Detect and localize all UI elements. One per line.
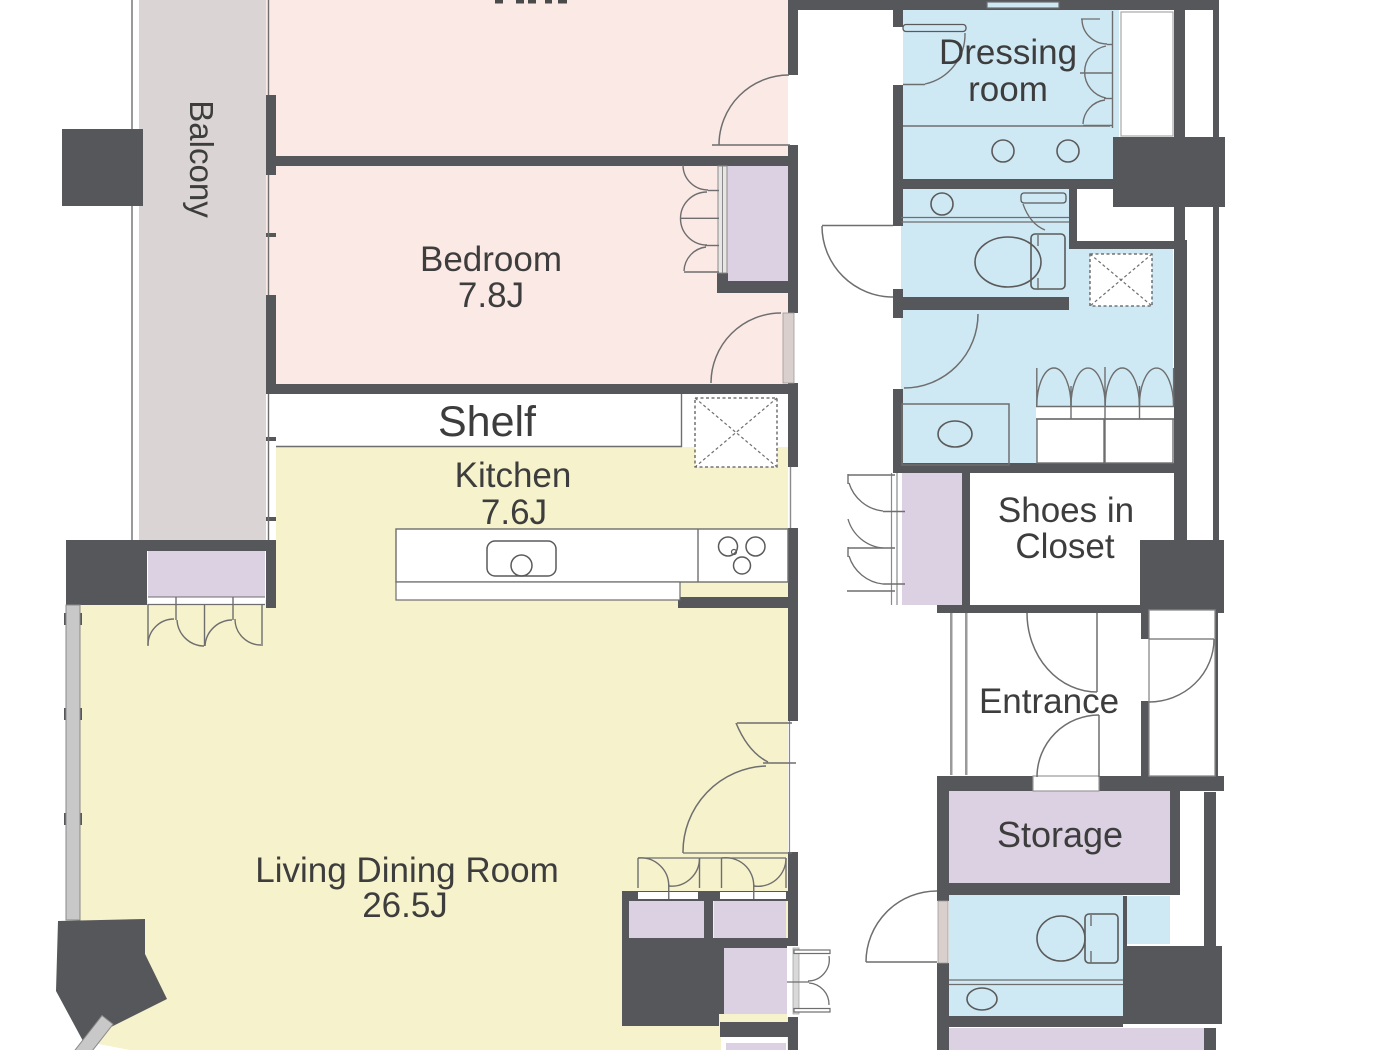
svg-text:Shelf: Shelf [438, 398, 537, 446]
svg-text:7.6J: 7.6J [481, 493, 547, 532]
svg-text:Living Dining Room: Living Dining Room [255, 851, 558, 890]
svg-text:Storage: Storage [997, 814, 1123, 855]
svg-text:Shoes in: Shoes in [998, 491, 1134, 530]
svg-text:Dressing: Dressing [939, 33, 1077, 72]
svg-text:7.8J: 7.8J [458, 276, 524, 315]
svg-text:Entrance: Entrance [979, 682, 1119, 721]
svg-text:Closet: Closet [1015, 527, 1114, 566]
svg-text:Kitchen: Kitchen [455, 456, 572, 495]
svg-text:Bedroom: Bedroom [420, 240, 562, 279]
svg-text:room: room [968, 70, 1048, 109]
svg-text:Balcony: Balcony [183, 100, 220, 218]
svg-text:26.5J: 26.5J [362, 886, 448, 925]
